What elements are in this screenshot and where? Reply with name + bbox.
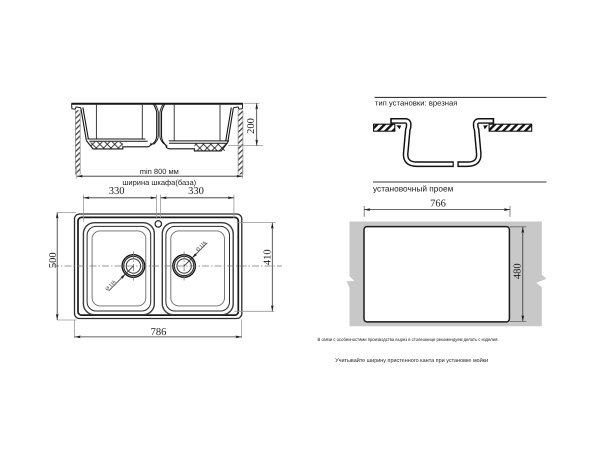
svg-text:330: 330 <box>109 186 125 197</box>
svg-text:В связи с особенностями произв: В связи с особенностями производства выр… <box>318 337 499 342</box>
svg-text:тип установки: врезная: тип установки: врезная <box>375 98 458 107</box>
svg-text:500: 500 <box>48 252 59 268</box>
svg-text:min 800 мм: min 800 мм <box>140 167 179 176</box>
svg-text:ширина шкафа(база): ширина шкафа(база) <box>122 178 196 187</box>
svg-text:410: 410 <box>263 249 274 265</box>
svg-text:330: 330 <box>188 186 204 197</box>
svg-text:установочный проем: установочный проем <box>373 184 454 194</box>
svg-text:766: 766 <box>430 199 446 210</box>
svg-text:200: 200 <box>246 118 257 134</box>
svg-text:786: 786 <box>151 327 167 338</box>
svg-text:Ø 116: Ø 116 <box>195 240 208 253</box>
svg-text:480: 480 <box>512 263 523 279</box>
svg-text:Ø 116: Ø 116 <box>104 279 117 292</box>
svg-text:Учитывайте ширину пристенного: Учитывайте ширину пристенного канта при … <box>335 358 488 364</box>
